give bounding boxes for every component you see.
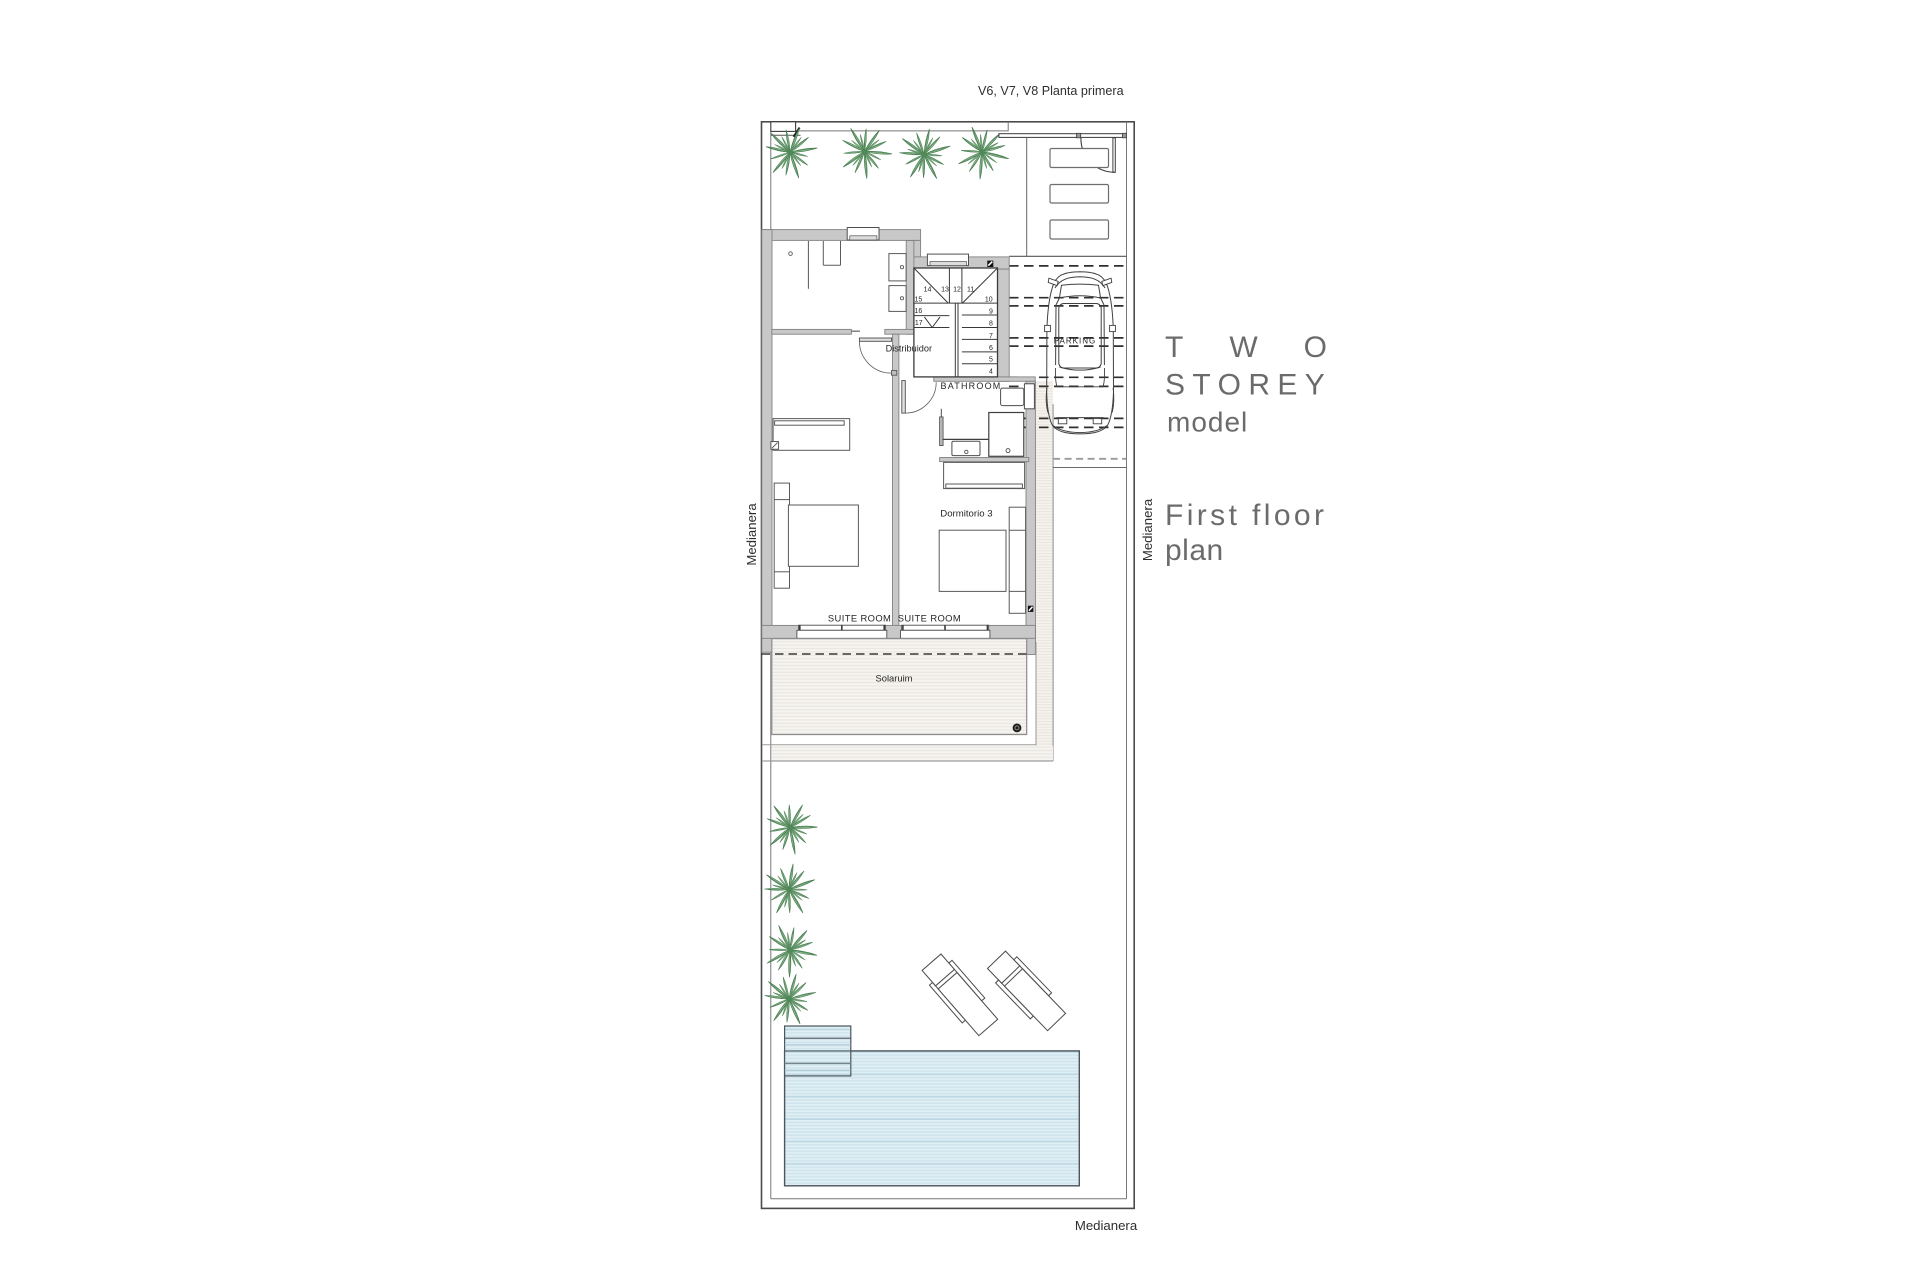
svg-text:First floor: First floor [1165, 499, 1327, 532]
svg-text:Distribuidor: Distribuidor [886, 343, 932, 353]
svg-text:17: 17 [915, 320, 923, 327]
svg-text:12: 12 [953, 287, 961, 294]
svg-text:9: 9 [989, 309, 993, 316]
svg-text:10: 10 [985, 297, 993, 304]
svg-text:8: 8 [989, 321, 993, 328]
svg-text:4: 4 [989, 369, 993, 376]
svg-text:5: 5 [989, 357, 993, 364]
svg-text:Dormitorio 3: Dormitorio 3 [940, 509, 992, 520]
svg-text:Medianera: Medianera [744, 503, 759, 566]
svg-text:16: 16 [915, 308, 923, 315]
svg-text:13: 13 [941, 287, 949, 294]
svg-text:6: 6 [989, 345, 993, 352]
svg-text:model: model [1167, 407, 1248, 438]
svg-text:11: 11 [967, 287, 974, 294]
svg-text:plan: plan [1165, 534, 1224, 567]
svg-text:Medianera: Medianera [1075, 1218, 1138, 1233]
svg-text:PARKING: PARKING [1054, 337, 1096, 346]
svg-text:TWO: TWO [1165, 331, 1373, 364]
svg-text:V6, V7, V8 Planta primera: V6, V7, V8 Planta primera [978, 84, 1124, 98]
svg-text:15: 15 [915, 297, 923, 304]
svg-text:SUITE ROOM: SUITE ROOM [828, 613, 891, 624]
svg-text:SUITE ROOM: SUITE ROOM [898, 613, 961, 624]
svg-text:Medianera: Medianera [1140, 498, 1155, 561]
svg-text:14: 14 [924, 287, 932, 294]
svg-text:Solaruim: Solaruim [876, 672, 913, 683]
svg-text:BATHROOM: BATHROOM [941, 381, 1002, 391]
svg-text:7: 7 [989, 333, 993, 340]
svg-text:STOREY: STOREY [1165, 369, 1332, 402]
